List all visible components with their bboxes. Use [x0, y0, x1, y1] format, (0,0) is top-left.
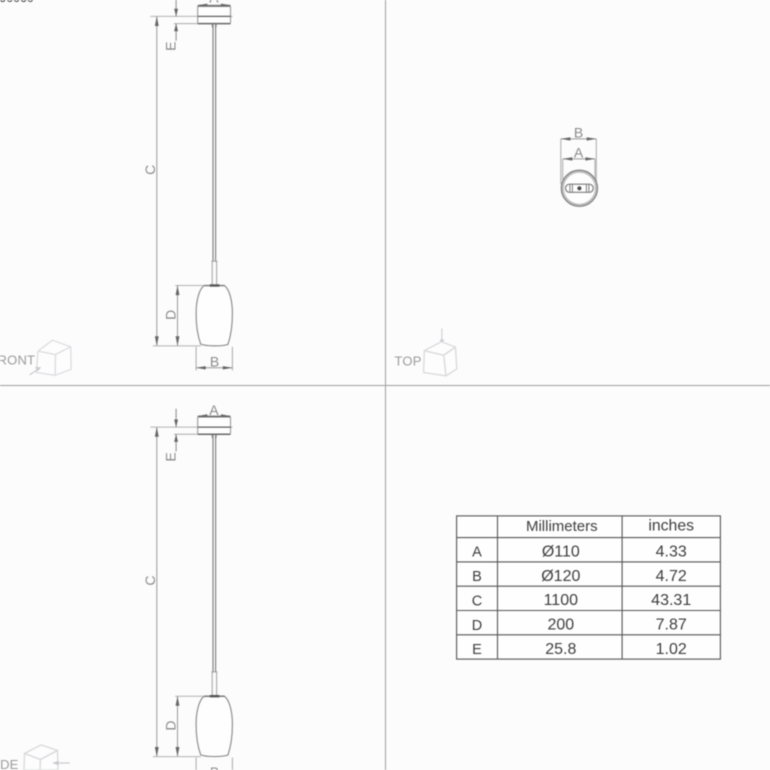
svg-text:D: D [163, 310, 179, 320]
svg-text:7.87: 7.87 [656, 617, 687, 634]
svg-text:A: A [574, 145, 584, 161]
svg-text:4.33: 4.33 [656, 543, 687, 560]
svg-text:4.72: 4.72 [656, 568, 687, 585]
svg-text:C: C [142, 165, 158, 175]
svg-text:TOP: TOP [395, 353, 422, 368]
svg-text:B: B [210, 353, 219, 369]
svg-text:Ø110: Ø110 [542, 543, 580, 560]
svg-text:A: A [472, 545, 482, 561]
svg-text:E: E [163, 452, 179, 461]
svg-text:B: B [210, 764, 219, 770]
svg-text:Millimeters: Millimeters [526, 518, 598, 535]
svg-text:90060: 90060 [0, 0, 34, 5]
svg-text:D: D [472, 618, 482, 634]
svg-text:B: B [574, 125, 583, 141]
svg-text:1100: 1100 [544, 592, 579, 609]
svg-text:25.8: 25.8 [545, 641, 576, 658]
svg-text:A: A [209, 0, 219, 6]
svg-text:Ø120: Ø120 [541, 568, 580, 585]
svg-text:E: E [472, 642, 482, 658]
svg-text:FRONT: FRONT [0, 352, 35, 367]
svg-text:D: D [163, 720, 179, 730]
svg-text:C: C [142, 575, 158, 585]
svg-text:B: B [472, 569, 482, 585]
svg-text:inches: inches [648, 517, 694, 534]
svg-text:SIDE: SIDE [0, 757, 19, 770]
svg-text:43.31: 43.31 [651, 592, 691, 609]
svg-text:E: E [163, 42, 179, 51]
svg-text:200: 200 [547, 617, 574, 634]
svg-text:C: C [472, 593, 482, 609]
svg-text:1.02: 1.02 [656, 641, 687, 658]
